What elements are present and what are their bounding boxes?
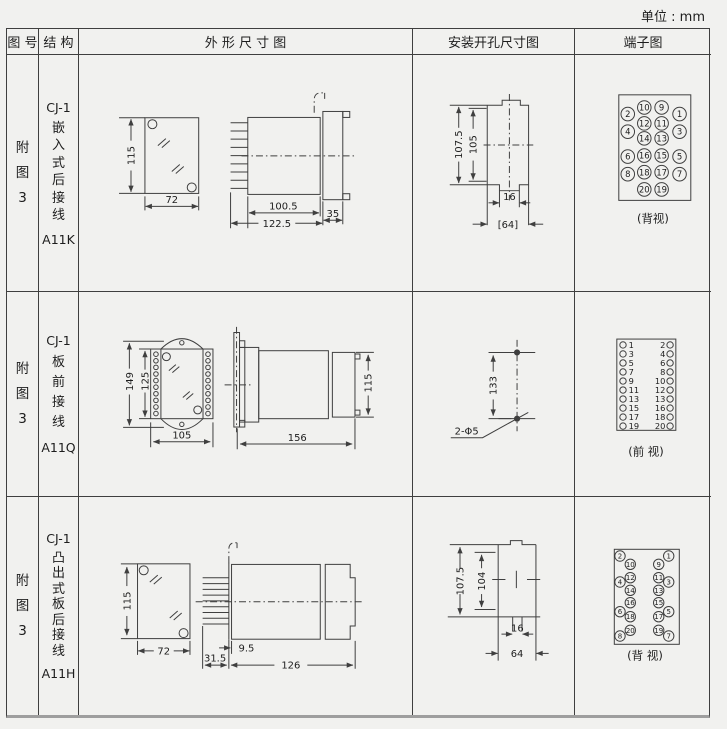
- spec-table: 图 号 结 构 外 形 尺 寸 图 安装开孔尺寸图 端子图 附 图 3 CJ-1…: [6, 28, 710, 718]
- terminal-number: 1: [666, 553, 670, 561]
- terminal-number: 5: [666, 608, 670, 616]
- struct-char: 接: [52, 393, 65, 413]
- outline-cell-a11h: 115 72 9.5 31.5 126: [79, 497, 413, 715]
- terminal-circle: [667, 414, 673, 420]
- terminal-circle: [620, 396, 626, 402]
- terminal-number: 20: [655, 421, 666, 431]
- dim-label-115: 115: [364, 374, 375, 393]
- terminal-number: 6: [625, 152, 630, 162]
- terminal-circle: [206, 352, 211, 357]
- mounting-cell-a11k: 107.5 105 16 [64]: [413, 55, 575, 292]
- terminal-number: 14: [626, 587, 635, 595]
- terminal-number: 19: [654, 627, 663, 635]
- code-label: A11K: [42, 232, 75, 247]
- terminal-cell-a11q: 1234567891011121313151617181920 (前 视): [575, 292, 711, 497]
- terminal-circle: [154, 411, 159, 416]
- dim-label-115: 115: [126, 146, 137, 165]
- struct-char: 线: [52, 644, 65, 660]
- front-view: 149 125 105: [123, 339, 213, 448]
- terminal-number: 18: [626, 613, 635, 621]
- struct-char: 线: [52, 413, 65, 433]
- fig-char: 图: [16, 594, 30, 619]
- terminal-drawing-a11h: 1091211141316151817201921436587 (背 视): [575, 497, 711, 715]
- terminal-circle: [667, 351, 673, 357]
- terminal-drawing-a11k: 1091211141316151817201921436587 (背视): [575, 55, 711, 291]
- header-structure: 结 构: [39, 29, 79, 55]
- terminal-circle: [667, 342, 673, 348]
- dim-label-105: 105: [172, 430, 191, 441]
- unit-label: 单位 : mm: [560, 6, 705, 25]
- terminal-circle: [154, 378, 159, 383]
- terminal-number: 5: [677, 152, 682, 162]
- terminal-circle: [620, 387, 626, 393]
- terminal-number: 12: [639, 118, 650, 128]
- struct-char: 式: [52, 155, 65, 173]
- struct-char: 入: [52, 137, 65, 155]
- dim-label-133: 133: [489, 376, 500, 395]
- dim-label-16: 16: [511, 623, 524, 634]
- terminal-circle: [620, 342, 626, 348]
- terminal-box: [614, 549, 679, 644]
- struct-char: 接: [52, 190, 65, 208]
- terminal-circle: [206, 411, 211, 416]
- dim-label-100.5: 100.5: [269, 201, 297, 212]
- terminal-circle: [667, 396, 673, 402]
- header-mounting: 安装开孔尺寸图: [413, 29, 575, 55]
- header-terminal: 端子图: [575, 29, 711, 55]
- view-label: (背视): [637, 211, 669, 225]
- terminal-number: 11: [654, 574, 663, 582]
- dim-label-149: 149: [125, 372, 136, 391]
- dim-label-126: 126: [281, 661, 300, 672]
- terminal-number: 10: [639, 103, 650, 113]
- terminal-circles: 1234567891011121313151617181920: [620, 340, 673, 431]
- terminal-circles: 1091211141316151817201921436587: [615, 551, 674, 641]
- terminal-number: 19: [656, 184, 667, 194]
- struct-char: 板: [52, 597, 65, 613]
- fig-char: 图: [16, 382, 30, 407]
- terminal-number: 12: [626, 574, 635, 582]
- terminal-circle: [154, 391, 159, 396]
- view-label: (前 视): [628, 445, 663, 459]
- mounting-cell-a11q: 133 2-Φ5: [413, 292, 575, 497]
- dim-label-31.5: 31.5: [204, 653, 226, 664]
- dim-label-125: 125: [140, 372, 151, 391]
- terminal-circle: [206, 372, 211, 377]
- terminal-number: 3: [677, 127, 682, 137]
- terminal-number: 8: [625, 169, 630, 179]
- terminal-number: 15: [654, 599, 663, 607]
- terminal-circle: [667, 360, 673, 366]
- dimensions: 107.5 104 16 64: [455, 547, 548, 660]
- dim-label-107.5: 107.5: [454, 130, 465, 158]
- terminal-circles: 1091211141316151817201921436587: [621, 101, 686, 196]
- struct-char: 后: [52, 172, 65, 190]
- terminal-cell-a11k: 1091211141316151817201921436587 (背视): [575, 55, 711, 292]
- terminal-circle: [154, 372, 159, 377]
- dim-label-64: 64: [511, 649, 524, 660]
- dim-label-107.5: 107.5: [455, 567, 466, 595]
- terminal-circle: [620, 360, 626, 366]
- terminal-circle: [667, 423, 673, 429]
- terminal-number: 16: [639, 151, 650, 161]
- dim-label-16: 16: [503, 192, 516, 203]
- hole-note-label: 2-Φ5: [455, 427, 479, 438]
- terminal-circle: [206, 405, 211, 410]
- struct-char: 后: [52, 613, 65, 629]
- dim-label-64: [64]: [498, 220, 518, 231]
- outline-drawing-a11q: 149 125 105 156 115: [79, 292, 412, 496]
- terminal-number: 18: [639, 167, 650, 177]
- fig-char: 附: [16, 136, 30, 161]
- fig-no-cell-3: 附 图 3: [7, 497, 39, 715]
- cutout-shape: [448, 541, 540, 661]
- terminal-number: 9: [659, 103, 664, 113]
- terminal-number: 17: [654, 613, 663, 621]
- structure-cell-a11h: CJ-1 凸 出 式 板 后 接 线 A11H: [39, 497, 79, 715]
- terminal-number: 9: [656, 561, 660, 569]
- terminal-number: 19: [629, 421, 640, 431]
- header-fig-no: 图 号: [7, 29, 39, 55]
- terminal-drawing-a11q: 1234567891011121313151617181920 (前 视): [575, 292, 711, 496]
- terminal-number: 20: [626, 627, 635, 635]
- terminal-number: 10: [626, 561, 635, 569]
- terminal-circle: [206, 391, 211, 396]
- model-label: CJ-1: [46, 100, 70, 115]
- terminal-circle: [620, 369, 626, 375]
- header-outline: 外 形 尺 寸 图: [79, 29, 413, 55]
- terminal-circle: [620, 378, 626, 384]
- terminal-number: 13: [654, 587, 663, 595]
- fig-char: 3: [18, 186, 27, 211]
- terminal-number: 14: [639, 133, 650, 143]
- terminal-circle: [154, 405, 159, 410]
- terminal-cell-a11h: 1091211141316151817201921436587 (背 视): [575, 497, 711, 715]
- code-label: A11H: [42, 666, 76, 681]
- view-label: (背 视): [627, 649, 663, 663]
- struct-char: 式: [52, 582, 65, 598]
- terminal-circle: [206, 359, 211, 364]
- terminal-circle: [154, 398, 159, 403]
- dimensions: 107.5 105 16 [64]: [454, 107, 543, 231]
- terminal-circle: [206, 398, 211, 403]
- fig-char: 附: [16, 569, 30, 594]
- dim-label-104: 104: [477, 572, 488, 591]
- terminal-number: 16: [626, 599, 635, 607]
- terminal-circle: [667, 378, 673, 384]
- terminal-circle: [620, 423, 626, 429]
- terminal-circle: [667, 405, 673, 411]
- fig-char: 图: [16, 161, 30, 186]
- dim-label-72: 72: [165, 195, 178, 206]
- terminal-circle: [154, 352, 159, 357]
- terminal-number: 1: [677, 109, 682, 119]
- terminal-number: 15: [656, 151, 667, 161]
- model-label: CJ-1: [46, 333, 70, 348]
- terminal-number: 4: [625, 127, 630, 137]
- struct-char: 接: [52, 628, 65, 644]
- outline-drawing-a11h: 115 72 9.5 31.5 126: [79, 497, 412, 715]
- side-view: 156 115: [225, 327, 375, 449]
- side-view: 9.5 31.5 126: [196, 543, 362, 672]
- outline-cell-a11k: 115 72 100.5 122.5 35: [79, 55, 413, 292]
- code-label: A11Q: [41, 440, 75, 455]
- dim-label-115: 115: [122, 591, 133, 610]
- outline-cell-a11q: 149 125 105 156 115: [79, 292, 413, 497]
- mounting-drawing-a11q: 133 2-Φ5: [413, 292, 574, 496]
- dim-label-105: 105: [469, 135, 480, 154]
- terminal-strip-right: [206, 352, 211, 416]
- terminal-number: 8: [618, 633, 622, 641]
- structure-cell-a11q: CJ-1 板 前 接 线 A11Q: [39, 292, 79, 497]
- terminal-circle: [206, 365, 211, 370]
- terminal-number: 7: [677, 169, 682, 179]
- terminal-number: 2: [625, 109, 630, 119]
- terminal-number: 6: [618, 608, 623, 616]
- struct-char: 板: [52, 353, 65, 373]
- fig-char: 附: [16, 357, 30, 382]
- terminal-circle: [667, 369, 673, 375]
- structure-cell-a11k: CJ-1 嵌 入 式 后 接 线 A11K: [39, 55, 79, 292]
- dim-label-122.5: 122.5: [263, 219, 291, 230]
- terminal-circle: [620, 414, 626, 420]
- hole-layout: 133 2-Φ5: [451, 340, 535, 438]
- outline-drawing-a11k: 115 72 100.5 122.5 35: [79, 55, 412, 291]
- front-view: 115 72: [119, 118, 199, 211]
- terminal-number: 4: [618, 579, 623, 587]
- terminal-circle: [154, 385, 159, 390]
- struct-char: 嵌: [52, 120, 65, 138]
- fig-no-cell-2: 附 图 3: [7, 292, 39, 497]
- struct-char: 凸: [52, 551, 65, 567]
- fig-char: 3: [18, 407, 27, 432]
- terminal-number: 13: [656, 133, 667, 143]
- terminal-number: 3: [666, 579, 670, 587]
- page: 单位 : mm 图 号 结 构 外 形 尺 寸 图 安装开孔尺寸图 端子图 附 …: [0, 0, 727, 729]
- terminal-circle: [620, 351, 626, 357]
- terminal-number: 11: [656, 118, 667, 128]
- model-label: CJ-1: [46, 531, 70, 546]
- mounting-cell-a11h: 107.5 104 16 64: [413, 497, 575, 715]
- mounting-drawing-a11k: 107.5 105 16 [64]: [413, 55, 574, 291]
- terminal-number: 2: [618, 553, 622, 561]
- struct-char: 线: [52, 207, 65, 225]
- terminal-circle: [154, 365, 159, 370]
- terminal-circle: [206, 378, 211, 383]
- mounting-drawing-a11h: 107.5 104 16 64: [413, 497, 574, 715]
- front-view: 115 72: [121, 564, 190, 658]
- terminal-number: 20: [639, 184, 650, 194]
- terminal-number: 17: [656, 167, 667, 177]
- terminal-circle: [620, 405, 626, 411]
- fig-char: 3: [18, 619, 27, 644]
- terminal-strip-left: [154, 352, 159, 416]
- fig-no-cell-1: 附 图 3: [7, 55, 39, 292]
- terminal-circle: [667, 387, 673, 393]
- terminal-circle: [154, 359, 159, 364]
- dim-label-9.5: 9.5: [239, 643, 255, 654]
- terminal-circle: [206, 385, 211, 390]
- dim-label-156: 156: [288, 433, 307, 444]
- struct-char: 前: [52, 373, 65, 393]
- struct-char: 出: [52, 566, 65, 582]
- terminal-number: 7: [666, 633, 670, 641]
- dim-label-35: 35: [327, 209, 340, 220]
- side-view: 100.5 122.5 35: [231, 93, 357, 230]
- dim-label-72: 72: [157, 646, 170, 657]
